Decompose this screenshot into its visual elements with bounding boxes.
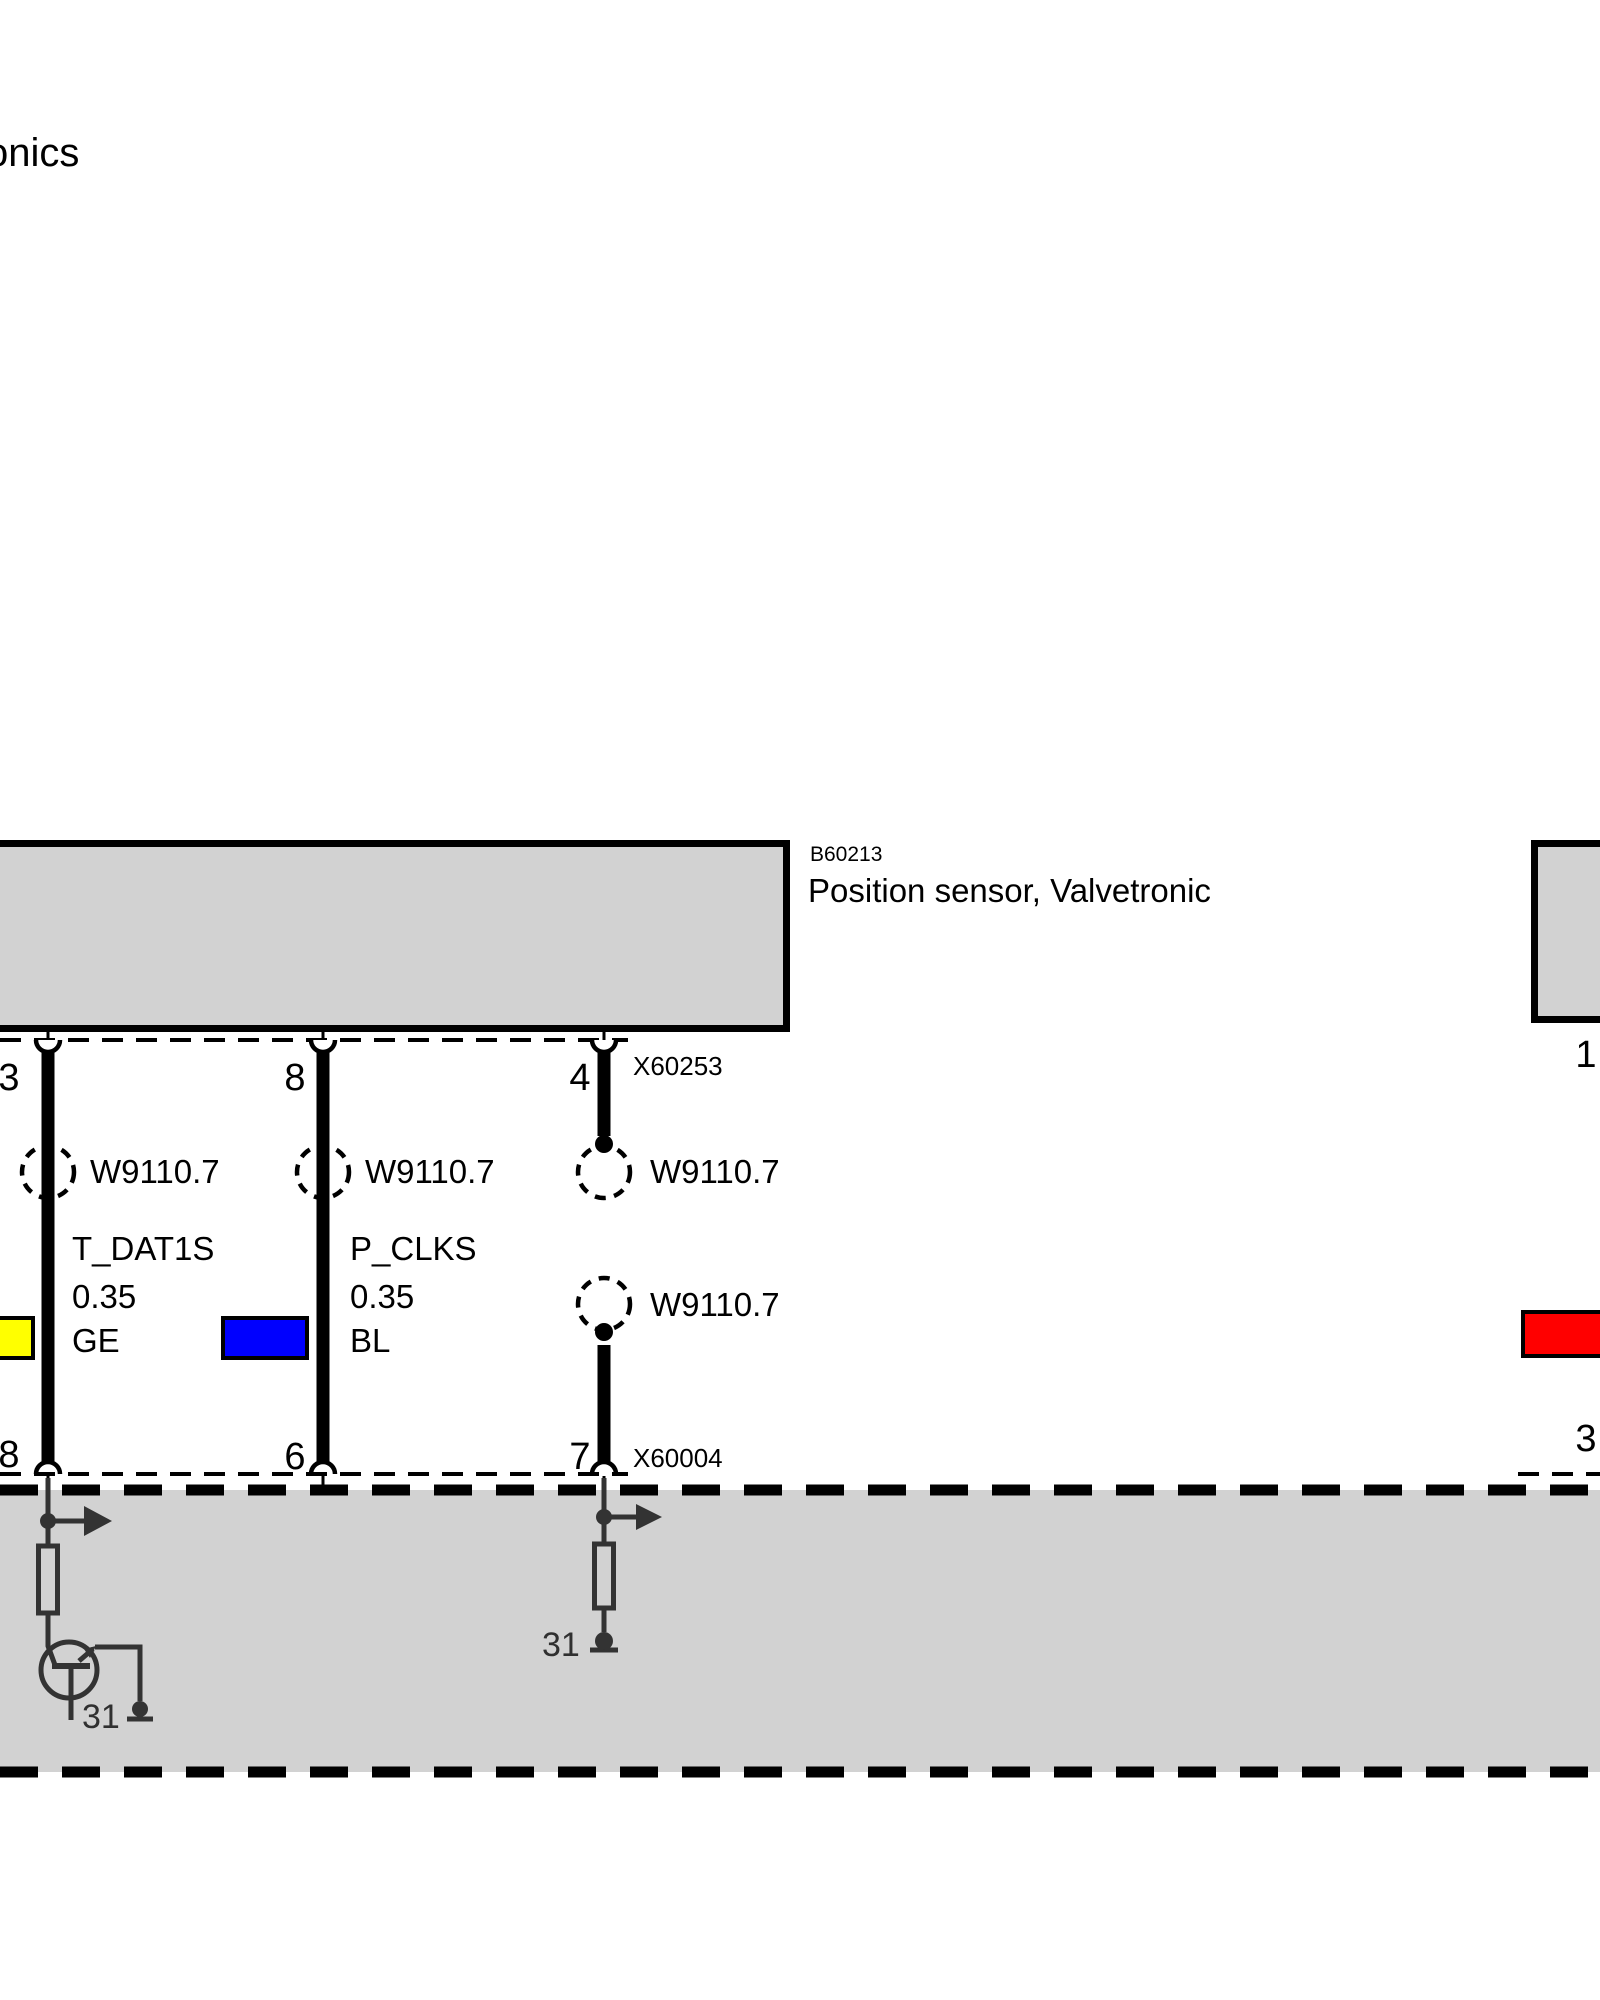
schematic-linework xyxy=(0,0,1600,2000)
ecu-wire xyxy=(95,1647,140,1701)
twist-marker-circle-4 xyxy=(578,1278,630,1330)
resistor-icon xyxy=(39,1546,58,1613)
wire-cross-section: 0.35 xyxy=(350,1278,414,1316)
pin-number-top-4: 4 xyxy=(560,1057,600,1100)
wire-color-patches xyxy=(0,1312,1600,1358)
pin-notch xyxy=(36,1040,60,1052)
ground-dot xyxy=(132,1701,148,1717)
wire-signal-name: P_CLKS xyxy=(350,1230,477,1268)
twisted-pair-label: W9110.7 xyxy=(650,1153,780,1191)
twist-marker-circle-3 xyxy=(578,1146,630,1198)
ground-terminal-label: 31 xyxy=(82,1698,120,1737)
ground-dot xyxy=(595,1632,613,1650)
wire-color-code: BL xyxy=(350,1322,390,1360)
signal-arrow-icon xyxy=(84,1506,112,1536)
bottom-connector-linework xyxy=(0,1474,1600,1490)
pin-notch xyxy=(592,1040,616,1052)
connector-code-top: X60253 xyxy=(633,1051,723,1082)
page-heading-partial: onics xyxy=(0,131,79,176)
color-patch-ge xyxy=(0,1318,33,1358)
resistor-icon xyxy=(595,1544,614,1608)
twisted-pair-label: W9110.7 xyxy=(365,1153,495,1191)
twisted-pair-label: W9110.7 xyxy=(650,1286,780,1324)
pin-number-top-8: 8 xyxy=(275,1057,315,1100)
junction-dot xyxy=(40,1513,56,1529)
junction-dot xyxy=(596,1509,612,1525)
component-code: B60213 xyxy=(810,843,882,867)
color-patch-rt xyxy=(1523,1312,1600,1356)
wire-cross-section: 0.35 xyxy=(72,1278,136,1316)
connector-code-bottom: X60004 xyxy=(633,1443,723,1474)
ecu-circuit-right xyxy=(590,1478,636,1650)
pin-number-bottom-6: 6 xyxy=(275,1436,315,1479)
pin-number-right-3: 3 xyxy=(1566,1418,1600,1461)
pin-number-top-3: 3 xyxy=(0,1057,29,1100)
ground-terminal-label: 31 xyxy=(542,1626,580,1665)
pin-number-right-1: 1 xyxy=(1566,1034,1600,1077)
wiring-diagram-page: onics B60213 Position sensor, Valvetroni… xyxy=(0,0,1600,2000)
pin-number-bottom-7: 7 xyxy=(560,1436,600,1479)
twisted-pair-label: W9110.7 xyxy=(90,1153,220,1191)
pin-notch xyxy=(311,1040,335,1052)
ecu-boundary xyxy=(0,1490,1600,1772)
ecu-wire xyxy=(48,1613,55,1665)
wire-signal-name: T_DAT1S xyxy=(72,1230,214,1268)
component-label: Position sensor, Valvetronic xyxy=(808,872,1211,910)
wire-color-code: GE xyxy=(72,1322,120,1360)
signal-arrow-icon xyxy=(636,1504,662,1530)
pin-number-bottom-8: 8 xyxy=(0,1434,29,1477)
color-patch-bl xyxy=(223,1318,307,1358)
top-connector-linework xyxy=(0,1031,628,1040)
